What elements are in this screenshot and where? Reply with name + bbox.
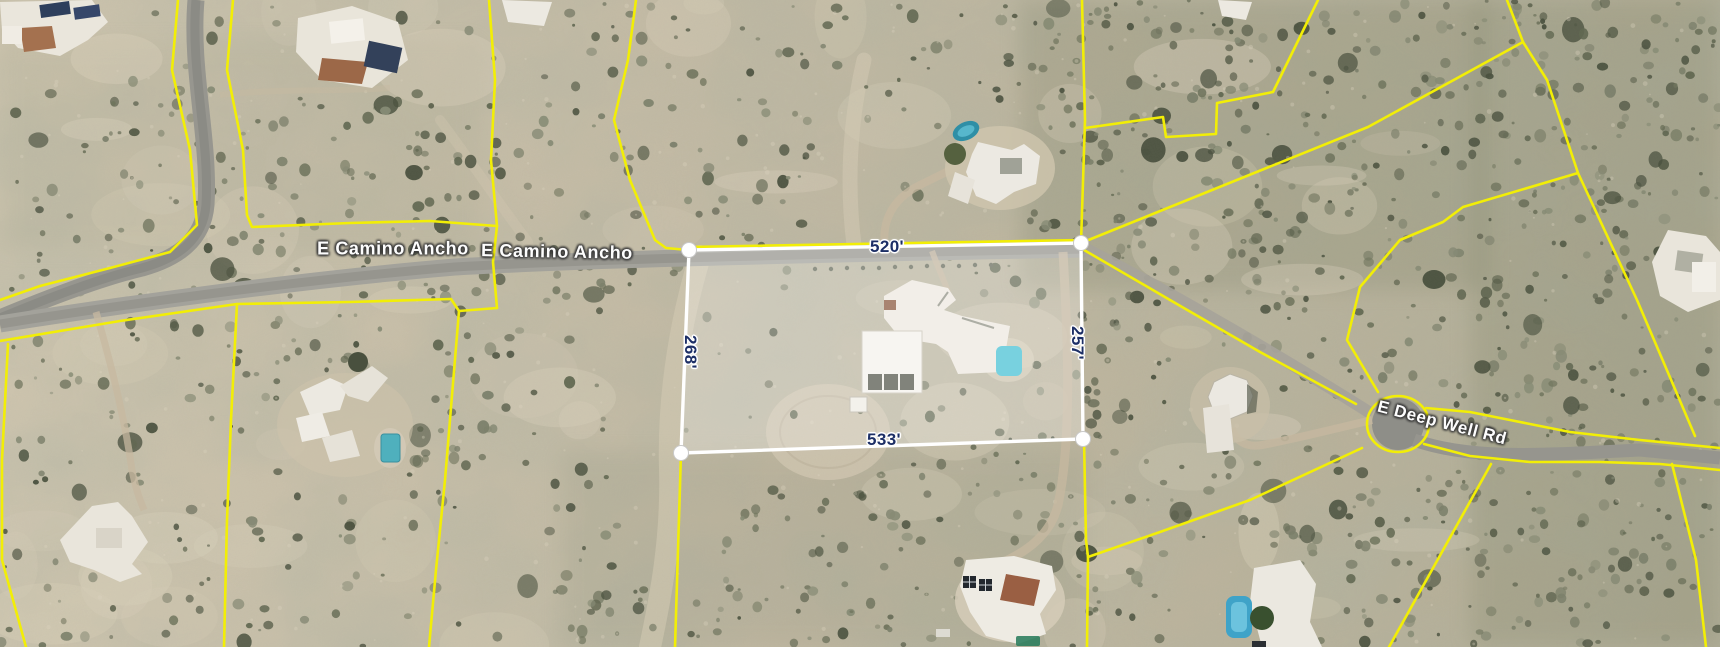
aerial-map-viewport[interactable]: E Camino Ancho E Camino Ancho E Deep Wel… <box>0 0 1720 647</box>
dimension-label-left: 268' <box>680 335 700 369</box>
road-label-camino-ancho-1: E Camino Ancho <box>317 239 469 260</box>
parcel-vertex-handle[interactable] <box>1074 236 1089 251</box>
building-top3 <box>502 0 552 26</box>
selected-parcel[interactable] <box>674 236 1091 461</box>
dimension-label-bottom: 533' <box>867 430 901 450</box>
selected-parcel-outline[interactable] <box>681 243 1083 453</box>
aerial-basemap[interactable] <box>0 0 1720 647</box>
parcel-vertex-handle[interactable] <box>682 243 697 258</box>
parcel-vertex-handle[interactable] <box>674 446 689 461</box>
road-label-camino-ancho-2: E Camino Ancho <box>481 240 633 264</box>
dimension-label-top: 520' <box>870 237 904 257</box>
dimension-label-right: 257' <box>1067 326 1087 360</box>
parcel-vertex-handle[interactable] <box>1076 432 1091 447</box>
